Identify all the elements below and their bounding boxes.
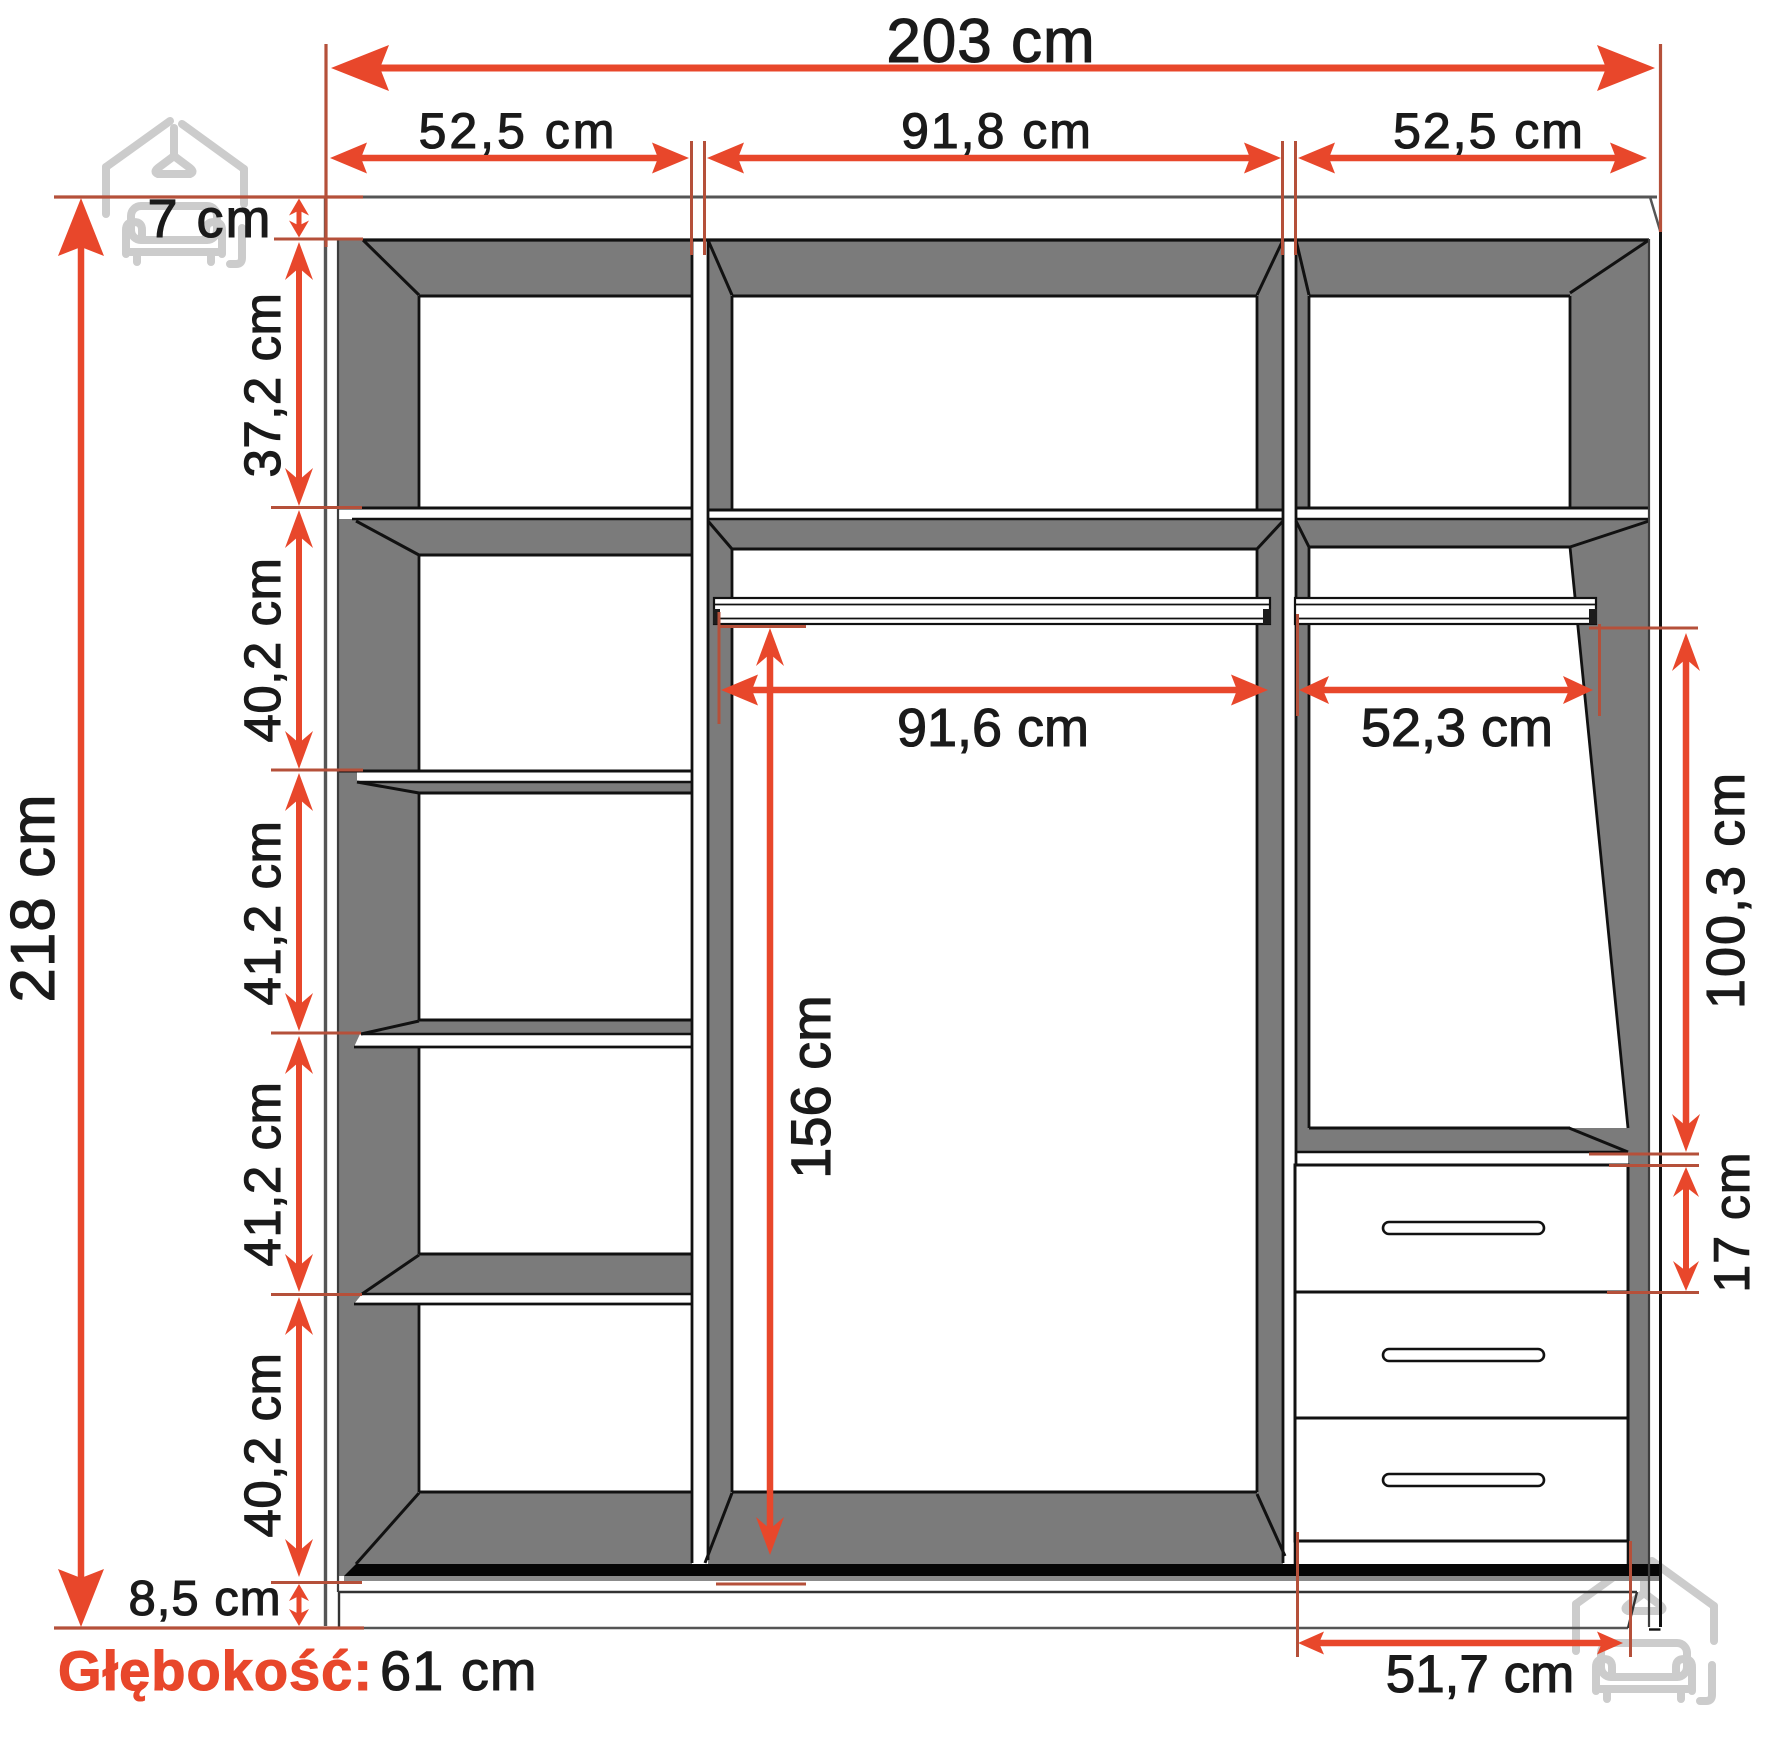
svg-text:91,6 cm: 91,6 cm	[897, 698, 1089, 758]
svg-text:7 cm: 7 cm	[147, 189, 272, 249]
svg-text:40,2 cm: 40,2 cm	[234, 558, 291, 743]
svg-text:41,2 cm: 41,2 cm	[234, 821, 291, 1006]
svg-text:52,3 cm: 52,3 cm	[1361, 698, 1553, 758]
svg-text:17 cm: 17 cm	[1704, 1151, 1760, 1292]
svg-text:51,7 cm: 51,7 cm	[1386, 1645, 1575, 1704]
svg-text:203 cm: 203 cm	[886, 7, 1095, 76]
svg-text:100,3 cm: 100,3 cm	[1696, 771, 1756, 1009]
svg-text:52,5 cm: 52,5 cm	[419, 103, 618, 159]
svg-text:61 cm: 61 cm	[380, 1639, 538, 1702]
svg-text:41,2 cm: 41,2 cm	[234, 1082, 291, 1267]
svg-text:8,5 cm: 8,5 cm	[128, 1572, 281, 1626]
svg-text:40,2 cm: 40,2 cm	[234, 1353, 291, 1538]
svg-text:52,5 cm: 52,5 cm	[1393, 103, 1585, 159]
svg-text:Głębokość:: Głębokość:	[58, 1639, 373, 1702]
svg-text:156 cm: 156 cm	[779, 995, 842, 1179]
svg-text:91,8 cm: 91,8 cm	[901, 103, 1093, 159]
svg-text:218 cm: 218 cm	[0, 793, 68, 1002]
svg-text:37,2 cm: 37,2 cm	[234, 293, 291, 478]
